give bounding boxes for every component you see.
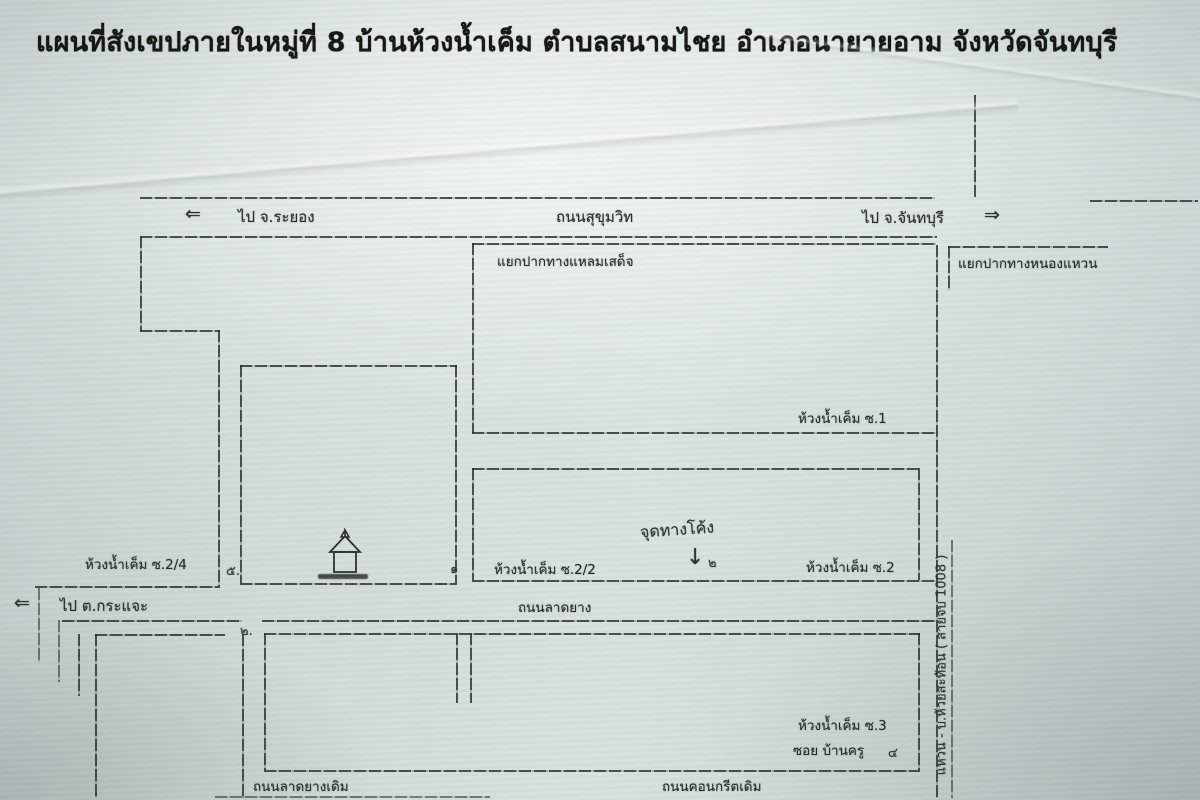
label-soi-1: ห้วงน้ำเค็ม ซ.1: [798, 407, 887, 429]
road-line-minor: [58, 620, 60, 682]
label-to-rayong: ไป จ.ระยอง: [238, 205, 315, 229]
block-edge: [140, 330, 220, 332]
label-junction-nong-waen: แยกปากทางหนองแหวน: [958, 252, 1097, 274]
label-sukhumvit-road: ถนนสุขุมวิท: [556, 205, 633, 229]
road-line-asphalt-north: [472, 580, 936, 582]
road-line-minor: [78, 634, 80, 696]
road-line-asphalt-south: [62, 620, 242, 622]
block-edge: [264, 633, 920, 635]
label-soi-2-4: ห้วงน้ำเค็ม ซ.2/4: [85, 553, 187, 575]
label-old-concrete-road: ถนนคอนกรีตเดิม: [662, 775, 761, 797]
block-edge: [95, 634, 225, 636]
label-soi-2-2: ห้วงน้ำเค็ม ซ.2/2: [494, 558, 596, 580]
block-edge: [918, 468, 920, 580]
block-edge: [472, 243, 936, 245]
handwritten-mark-2: ๒: [708, 552, 717, 573]
handwritten-mark-1: ๑: [450, 558, 458, 579]
block-edge: [472, 243, 474, 433]
block-edge: [455, 365, 457, 583]
house-caption-smudge: [318, 574, 368, 579]
label-asphalt-road: ถนนลาดยาง: [518, 596, 591, 618]
label-to-krachae: ไป ต.กระแจะ: [60, 594, 148, 618]
label-soi-ban-khru: ซอย บ้านครู: [793, 739, 864, 761]
block-edge: [918, 633, 920, 770]
block-edge: [240, 365, 242, 583]
arrow-left-icon: ⇐: [185, 203, 200, 225]
block-edge: [95, 634, 97, 798]
block-edge: [948, 246, 950, 290]
handwritten-mark-4: ๔: [888, 742, 898, 763]
block-edge: [472, 468, 474, 580]
handwritten-curve-point: จุดทางโค้ง: [639, 515, 715, 545]
block-edge: [264, 633, 266, 770]
road-line-sukhumvit-north: [140, 197, 935, 199]
block-edge: [218, 330, 220, 586]
block-edge: [242, 634, 244, 798]
arrow-down-icon: ↓: [686, 545, 703, 570]
label-soi-3: ห้วงน้ำเค็ม ซ.3: [798, 714, 887, 736]
road-line-sukhumvit-north-east: [1090, 200, 1198, 202]
block-edge: [472, 432, 936, 434]
label-old-asphalt-road: ถนนลาดยางเดิม: [253, 775, 349, 797]
road-line-soi-stub: [456, 633, 458, 703]
label-to-chanthaburi: ไป จ.จันทบุรี: [862, 206, 944, 230]
road-line-soi-stub: [470, 633, 472, 703]
road-line-north-branch: [974, 95, 976, 197]
arrow-right-icon: ⇒: [984, 204, 999, 226]
block-edge: [264, 770, 920, 772]
block-edge: [240, 365, 457, 367]
road-line-sukhumvit-south: [140, 236, 937, 238]
map-drawing: [0, 0, 1200, 800]
scanned-map-page: แผนที่สังเขปภายในหมู่ที่ 8 บ้านห้วงน้ำเค…: [0, 0, 1200, 800]
block-edge: [472, 468, 918, 470]
label-rural-route-1008: แหวน - บ.ห้วยสะท้อน ( สายจบ 1008 ): [931, 555, 952, 776]
block-edge: [948, 246, 1108, 248]
handwritten-mark-5: ๕.: [226, 560, 240, 581]
road-line-asphalt-south: [262, 620, 936, 622]
road-line-minor: [38, 588, 40, 662]
handwritten-mark-2b: ๒.: [240, 620, 253, 641]
label-soi-2: ห้วงน้ำเค็ม ซ.2: [806, 556, 895, 578]
label-junction-laem-sadet: แยกปากทางแหลมเสด็จ: [497, 250, 633, 272]
road-line-asphalt-north-west: [35, 586, 220, 588]
arrow-left-icon: ⇐: [14, 592, 29, 614]
block-edge: [140, 236, 142, 332]
